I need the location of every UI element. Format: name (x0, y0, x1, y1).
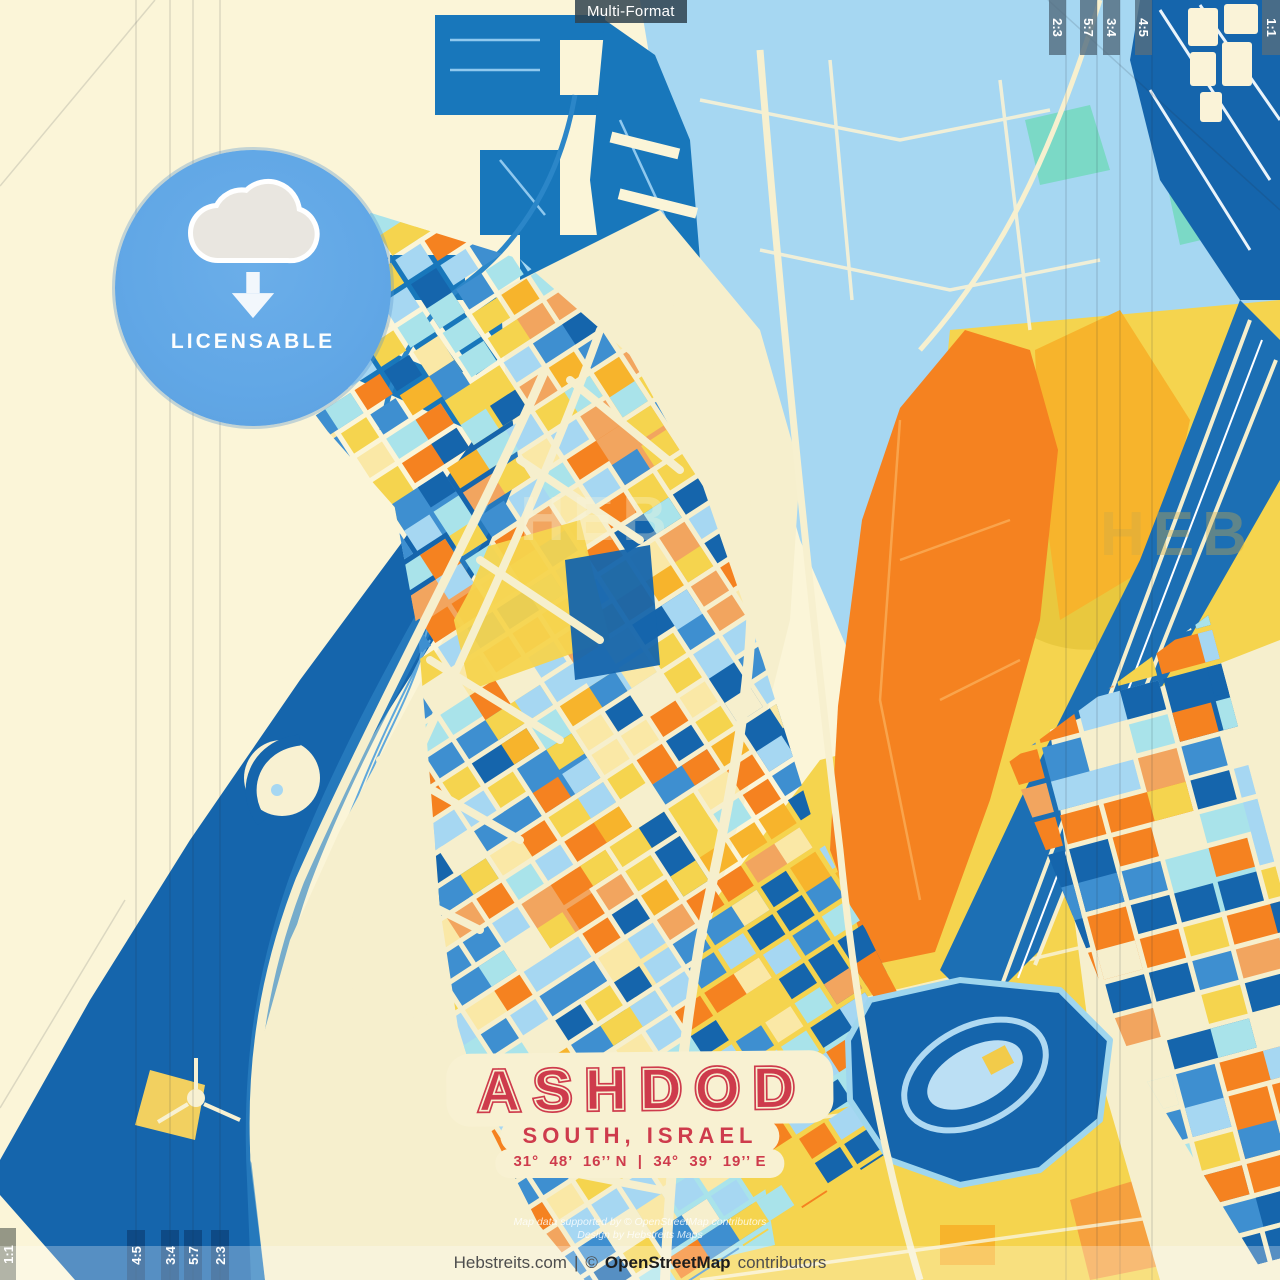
footer-osm-link[interactable]: OpenStreetMap (605, 1253, 731, 1273)
download-arrow-icon (224, 272, 282, 322)
badge-label: LICENSABLE (171, 330, 335, 354)
title-blob: ASHDOD ASHDOD (446, 1050, 834, 1127)
poster-canvas: HEB HEB Multi-Format 2:3 5:7 3:4 4:5 1:1… (0, 0, 1280, 1280)
region-label: SOUTH, ISRAEL (523, 1123, 758, 1149)
ratio-label: 4:5 (1136, 18, 1151, 37)
footer-site-link[interactable]: Hebstreits.com (454, 1253, 567, 1273)
coordinates-label: 31° 48’ 16’’ N | 34° 39’ 19’’ E (513, 1153, 766, 1170)
format-label: Multi-Format (575, 0, 687, 23)
ratio-label: 1:1 (1264, 18, 1279, 37)
title-block: ASHDOD ASHDOD SOUTH, ISRAEL 31° 48’ 16’’… (446, 1052, 833, 1178)
map-credits: Map data supported by © OpenStreetMap co… (514, 1216, 767, 1242)
ratio-bar-4-5: 4:5 (1135, 0, 1152, 55)
cloud-icon (174, 166, 332, 270)
ratio-bar-5-7: 5:7 (1080, 0, 1097, 55)
ratio-bar-1-1: 1:1 (1262, 0, 1280, 55)
ratio-label: 5:7 (1081, 18, 1096, 37)
ratio-label: 3:4 (1104, 18, 1119, 37)
watermark-text: HEB (520, 485, 675, 554)
licensable-badge[interactable]: LICENSABLE (115, 150, 391, 426)
coords-blob: 31° 48’ 16’’ N | 34° 39’ 19’’ E (495, 1149, 784, 1178)
watermark-text-2: HEB (1100, 500, 1255, 569)
footer-copyright: © (585, 1253, 598, 1273)
ratio-bar-2-3: 2:3 (1049, 0, 1066, 55)
footer-suffix: contributors (738, 1253, 827, 1273)
ratio-label: 2:3 (1050, 18, 1065, 37)
city-title: ASHDOD ASHDOD (472, 1058, 808, 1121)
city-title-inline: ASHDOD (472, 1058, 808, 1121)
footer-separator: | (574, 1253, 578, 1273)
credits-line-2: Design by Hebstreits Maps (514, 1229, 767, 1242)
ratio-bar-3-4: 3:4 (1103, 0, 1120, 55)
credits-line-1: Map data supported by © OpenStreetMap co… (514, 1216, 767, 1229)
footer-bar: Hebstreits.com | © OpenStreetMap contrib… (0, 1246, 1280, 1280)
